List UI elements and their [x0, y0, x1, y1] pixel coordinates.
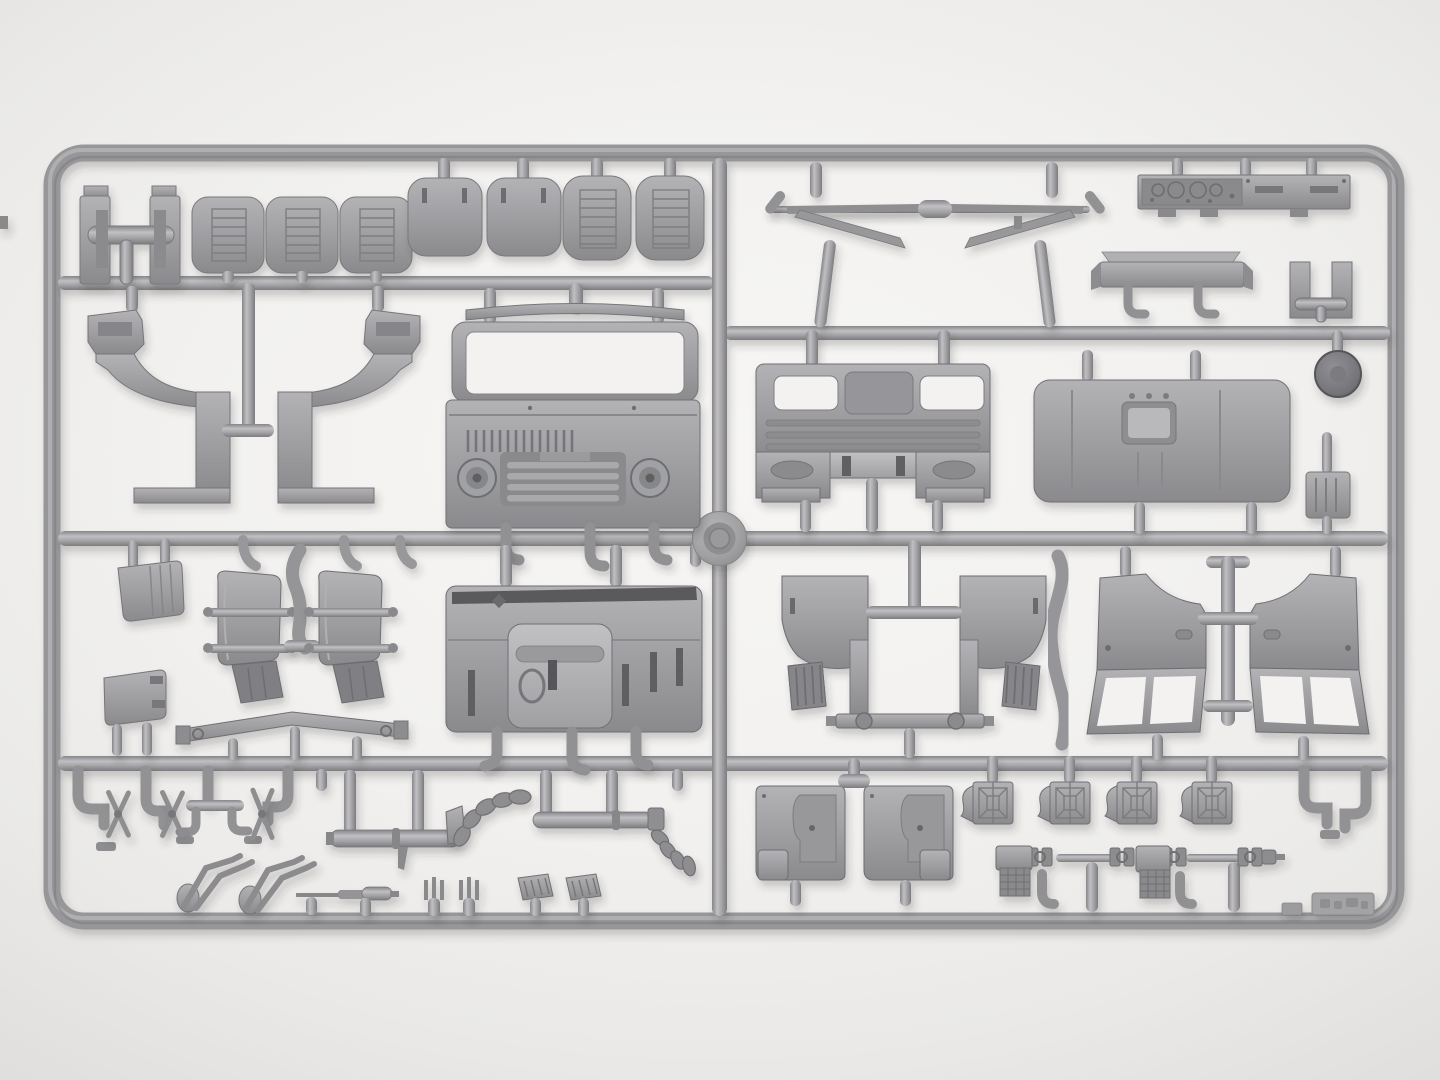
mold-boss [693, 512, 747, 566]
embossed-tag [1282, 893, 1374, 915]
seat-cushion-row [192, 197, 412, 283]
sprue-illustration [0, 0, 1440, 1080]
door-card-right [864, 786, 953, 906]
exhaust-pipe-front [326, 770, 460, 870]
exhaust-flex-front [446, 790, 531, 849]
cab-rear-panel [756, 330, 990, 532]
crossmember-beam [176, 712, 408, 760]
wiper-arm-pair-2 [239, 858, 314, 914]
cab-roof-panel [1034, 350, 1290, 534]
exhaust-flex-rear [648, 827, 697, 877]
cab-floor-panel [446, 545, 702, 770]
mounting-crossbar [826, 713, 994, 758]
wheel-hub-cap [1315, 330, 1361, 397]
instrument-panel [1138, 158, 1350, 217]
cab-front-panel [446, 283, 700, 566]
mudguard-right [304, 540, 412, 703]
mirror-head-lower [104, 670, 166, 756]
seat-base-pair [408, 158, 561, 256]
exhaust-downpipe [284, 550, 320, 652]
steering-column [296, 887, 399, 916]
exhaust-pipe-rear [533, 770, 664, 830]
seat-backrest-pair [563, 158, 704, 260]
mudguard-left [203, 540, 297, 703]
fork-bracket-pair [424, 877, 479, 916]
drive-shaft-assembly [996, 846, 1285, 912]
wheel-arch-right [960, 576, 1046, 716]
door-frame-right [1250, 546, 1369, 760]
curved-pipe [1051, 556, 1065, 744]
front-bumper [1091, 252, 1253, 314]
pedal-pair [518, 874, 601, 916]
wheel-arch-tbar [866, 540, 962, 619]
sprue-photo: Overhead photo of a light-gray injection… [0, 0, 1440, 1080]
mirror-head-upper [118, 538, 184, 621]
mirror-runner-connector [918, 200, 952, 218]
door-frame-left [1087, 546, 1206, 760]
cab-side-frame-left [88, 286, 230, 503]
cab-side-frame-right [278, 286, 420, 503]
mirror-arm-right [950, 162, 1107, 328]
seat-mount-bracket [80, 186, 180, 284]
door-center-sprue [1198, 556, 1258, 726]
door-card-left [756, 786, 845, 906]
wheel-arch-left [782, 576, 868, 716]
pipe-elbows-right [1304, 771, 1366, 839]
engine-mount-bracket [1290, 262, 1352, 322]
step-bracket [1306, 432, 1350, 534]
